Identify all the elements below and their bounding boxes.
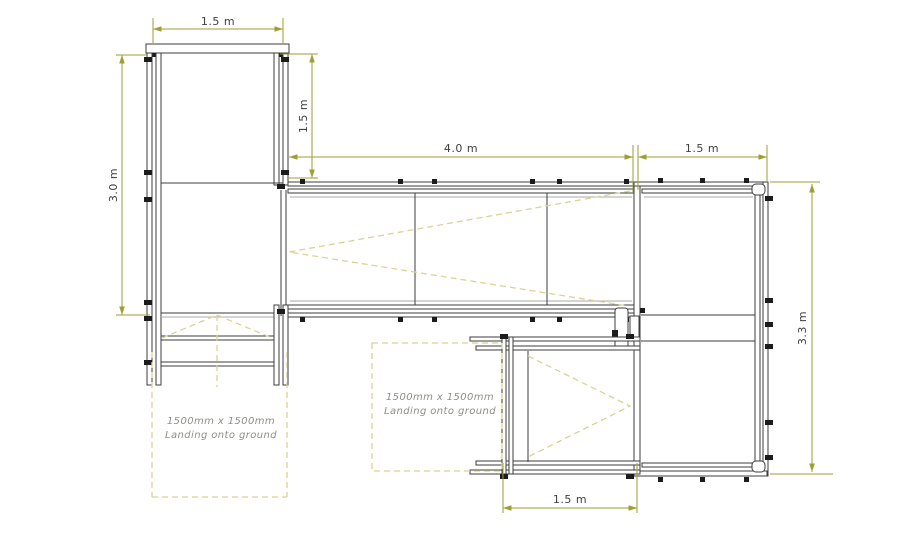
platform-top-cap bbox=[146, 44, 289, 53]
dim-label-top-platform-depth: 1.5 m bbox=[297, 99, 310, 133]
lower-ramp-end-post-b bbox=[509, 337, 513, 474]
dim-label-main-ramp-length: 4.0 m bbox=[444, 142, 478, 155]
platform-bottom-rail-outer bbox=[634, 471, 767, 476]
main-ramp-top-rail-outer bbox=[288, 182, 634, 186]
dim-label-lower-ramp-length: 1.5 m bbox=[553, 493, 587, 506]
platform-bottom-rail-inner bbox=[642, 463, 754, 467]
platform-right-rail-outer bbox=[763, 182, 768, 476]
corner-elbow-bottom bbox=[752, 461, 765, 472]
main-ramp-top-rail-inner bbox=[288, 189, 634, 193]
left-platform bbox=[144, 44, 289, 385]
main-ramp-slope-arrow bbox=[289, 191, 630, 306]
dim-left-structure-height: 3.0 m bbox=[107, 55, 150, 315]
ramp-plan-drawing: 1500mm x 1500mm Landing onto ground bbox=[0, 0, 900, 536]
lower-ramp-top-rail-inner bbox=[476, 346, 640, 350]
lower-ramp-bottom-rail-inner bbox=[476, 461, 640, 465]
platform-top-rail-inner bbox=[642, 189, 754, 193]
right-handrail-inner bbox=[274, 53, 279, 185]
right-platform bbox=[612, 178, 773, 482]
left-landing-note-line2: Landing onto ground bbox=[165, 430, 277, 441]
left-landing-note-line1: 1500mm x 1500mm bbox=[167, 416, 275, 427]
left-ground-landing: 1500mm x 1500mm Landing onto ground bbox=[152, 352, 287, 497]
platform-right-rail-inner bbox=[755, 190, 760, 468]
left-stairs bbox=[161, 305, 288, 387]
right-handrail-outer bbox=[283, 53, 288, 185]
left-handrail-inner bbox=[156, 53, 161, 385]
lower-ramp-top-rail-outer bbox=[470, 337, 640, 341]
dim-right-platform-height: 3.3 m bbox=[770, 182, 833, 474]
dim-label-top-platform-width: 1.5 m bbox=[201, 15, 235, 28]
main-ramp-bottom-rail-outer bbox=[288, 313, 634, 317]
dim-label-right-platform-width: 1.5 m bbox=[685, 142, 719, 155]
left-handrail-outer bbox=[147, 53, 152, 385]
corner-elbow-top bbox=[752, 184, 765, 195]
right-ground-landing: 1500mm x 1500mm Landing onto ground bbox=[372, 343, 502, 471]
main-ramp-bottom-rail-inner bbox=[288, 305, 634, 309]
lower-ramp-slope-arrow bbox=[528, 356, 630, 457]
right-landing-note-line2: Landing onto ground bbox=[384, 406, 496, 417]
lower-ramp-posts bbox=[500, 334, 634, 479]
stair-rail-right-inner bbox=[274, 305, 279, 385]
dim-label-right-platform-height: 3.3 m bbox=[796, 311, 809, 345]
cap-feet bbox=[150, 53, 285, 57]
main-ramp bbox=[277, 179, 634, 322]
right-landing-note-line1: 1500mm x 1500mm bbox=[386, 392, 494, 403]
dim-top-platform-width: 1.5 m bbox=[153, 15, 283, 43]
plan-canvas: 1500mm x 1500mm Landing onto ground bbox=[0, 0, 900, 536]
dim-label-left-structure-height: 3.0 m bbox=[107, 168, 120, 202]
